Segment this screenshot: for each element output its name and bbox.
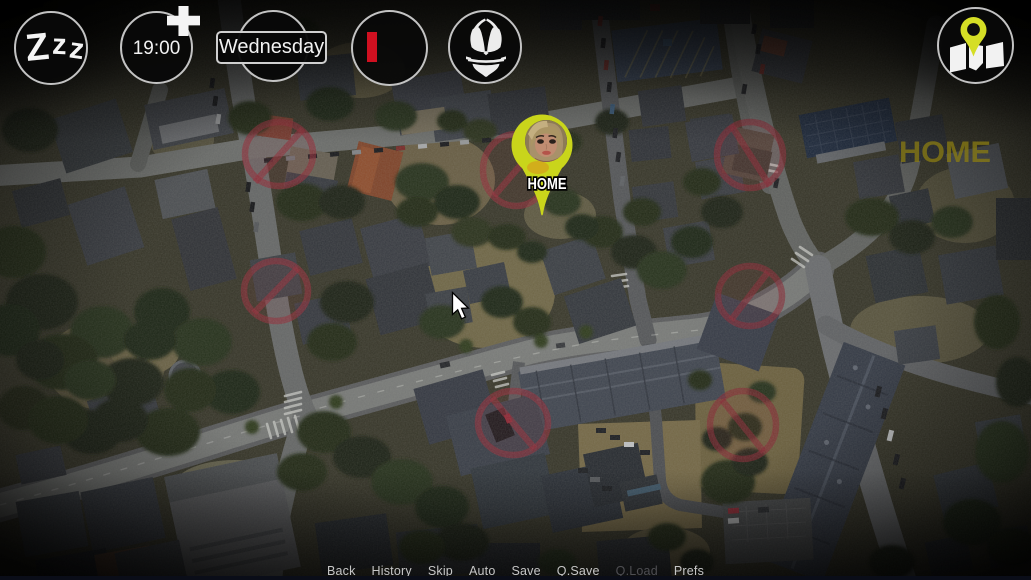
- svg-text:HOME: HOME: [899, 136, 991, 169]
- svg-text:HOME: HOME: [528, 176, 567, 193]
- svg-text:z: z: [52, 29, 68, 61]
- svg-text:Z: Z: [23, 26, 50, 70]
- svg-text:z: z: [67, 32, 86, 66]
